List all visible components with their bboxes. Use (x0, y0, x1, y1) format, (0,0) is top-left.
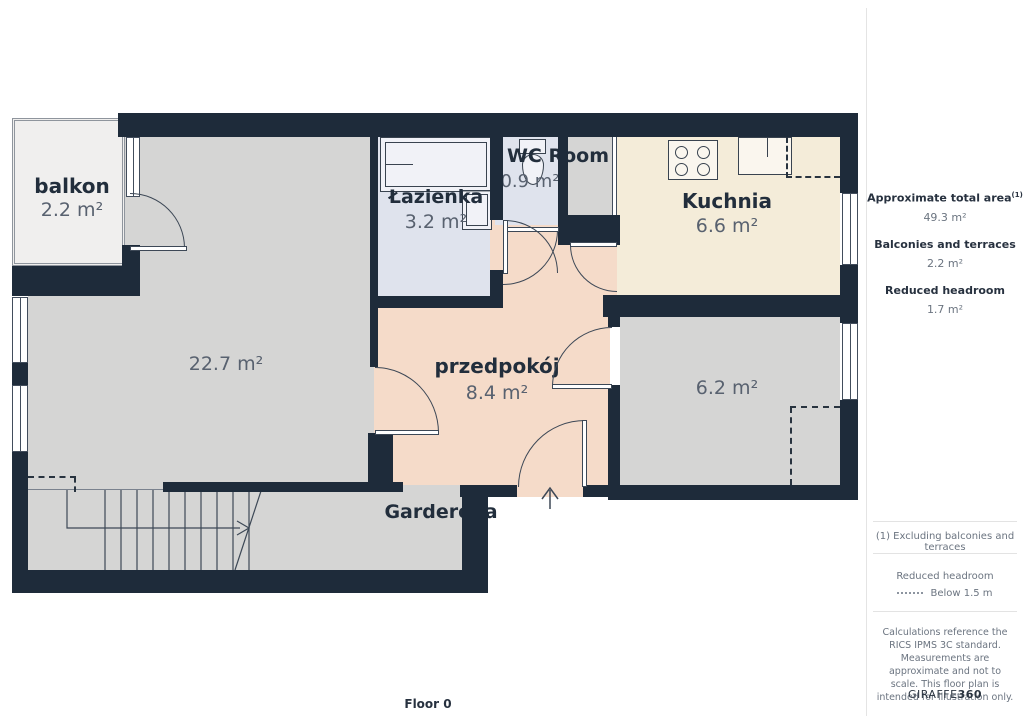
sidebar-section-divider (873, 553, 1017, 554)
sidebar-section-divider (873, 521, 1017, 522)
sidebar-section-divider (873, 611, 1017, 612)
window (126, 137, 140, 197)
footnote-text: (1) Excluding balconies and terraces (866, 531, 1024, 553)
door-leaf (552, 384, 612, 389)
reduced-headroom-marker (790, 406, 840, 408)
room-area-balkon: 2.2 m² (41, 199, 103, 221)
window (842, 193, 858, 265)
entry-arrow-icon (536, 483, 564, 511)
stat-label-reduced-headroom: Reduced headroom (885, 284, 1005, 297)
wall (370, 137, 378, 367)
door-leaf (130, 246, 187, 251)
stove-icon (668, 140, 718, 180)
door-leaf (503, 220, 508, 274)
wall (370, 296, 503, 308)
floor-plan-canvas: balkon 2.2 m² 22.7 m² Łazienka 3.2 m² WC… (0, 0, 1024, 724)
stairs (60, 486, 270, 572)
door-leaf (570, 242, 617, 247)
reduced-headroom-marker (786, 137, 788, 178)
door-leaf (582, 420, 587, 487)
stat-value-total-area: 49.3 m² (923, 211, 966, 224)
reduced-headroom-marker (790, 407, 792, 485)
wall (368, 433, 393, 492)
wall (840, 400, 858, 500)
stat-label-total-area: Approximate total area(1) (867, 191, 1023, 205)
wall (608, 385, 620, 497)
floor-label: Floor 0 (404, 697, 451, 711)
stat-value-balconies: 2.2 m² (927, 257, 963, 270)
wall (12, 570, 488, 593)
legend-title: Reduced headroom (866, 571, 1024, 582)
info-sidebar: Approximate total area(1) 49.3 m² Balcon… (866, 0, 1024, 724)
wall (608, 485, 858, 500)
area-stats: Approximate total area(1) 49.3 m² Balcon… (866, 191, 1024, 330)
wall (12, 266, 140, 296)
room-area-6-2: 6.2 m² (696, 377, 758, 399)
room-label-przedpokoj: przedpokój (434, 354, 559, 378)
bathtub-icon (380, 137, 492, 192)
reduced-headroom-marker (786, 176, 840, 178)
wall (840, 137, 858, 193)
window (12, 385, 28, 452)
room-area-lazienka: 3.2 m² (405, 211, 467, 233)
room-label-kuchnia: Kuchnia (682, 189, 772, 213)
wall (603, 295, 858, 317)
sidebar-divider (866, 8, 867, 716)
wall (840, 265, 858, 323)
room-area-22-7: 22.7 m² (189, 353, 263, 375)
door-leaf (375, 430, 439, 435)
room-area-wc: 0.9 m² (500, 171, 559, 192)
window (842, 323, 858, 400)
wall (462, 485, 488, 593)
footnote-marker: (1) (1012, 191, 1023, 199)
stat-label-balconies: Balconies and terraces (874, 238, 1016, 251)
wall (118, 113, 858, 137)
room-area-przedpokoj: 8.4 m² (466, 382, 528, 404)
dotted-line-icon (897, 592, 923, 594)
wall (490, 270, 503, 308)
wall (12, 363, 28, 385)
reduced-headroom-marker (28, 476, 76, 478)
giraffe360-logo: GIRAFFE360 (866, 688, 1024, 701)
window (12, 297, 28, 363)
room-area-kuchnia: 6.6 m² (696, 215, 758, 237)
room-floor-6-2 (620, 317, 840, 485)
reduced-headroom-marker (74, 477, 76, 492)
wall (163, 482, 403, 492)
wall (608, 317, 620, 327)
wall (490, 137, 503, 220)
wall (460, 485, 517, 497)
room-label-lazienka: Łazienka (389, 186, 483, 208)
legend-item: Below 1.5 m (866, 588, 1024, 599)
kitchen-partition-line (612, 137, 617, 215)
wall (558, 215, 620, 245)
room-label-balkon: balkon (34, 174, 109, 198)
stat-value-reduced-headroom: 1.7 m² (927, 303, 963, 316)
sink-icon (738, 137, 792, 175)
